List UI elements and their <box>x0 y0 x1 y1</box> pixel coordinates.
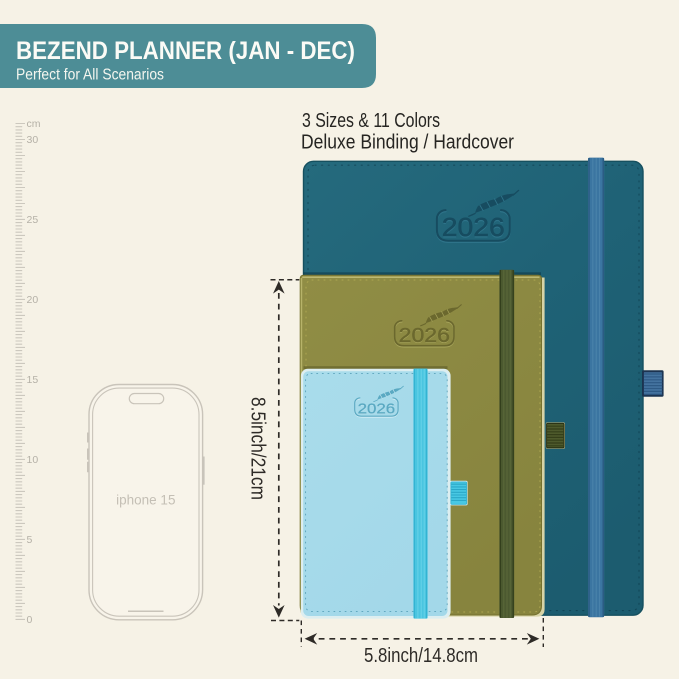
svg-text:2026: 2026 <box>442 214 505 242</box>
svg-text:15: 15 <box>27 374 39 386</box>
svg-text:iphone 15: iphone 15 <box>116 493 175 508</box>
svg-text:3 Sizes & 11 Colors: 3 Sizes & 11 Colors <box>302 109 440 132</box>
svg-text:20: 20 <box>27 294 39 306</box>
svg-text:5: 5 <box>27 534 33 546</box>
svg-text:8.5inch/21cm: 8.5inch/21cm <box>247 397 269 500</box>
svg-text:2026: 2026 <box>358 400 396 417</box>
svg-text:5.8inch/14.8cm: 5.8inch/14.8cm <box>364 644 478 667</box>
svg-text:BEZEND PLANNER (JAN - DEC): BEZEND PLANNER (JAN - DEC) <box>16 37 355 65</box>
svg-text:cm: cm <box>27 118 41 130</box>
svg-text:25: 25 <box>27 214 39 226</box>
svg-text:2026: 2026 <box>399 324 450 347</box>
svg-text:Deluxe Binding / Hardcover: Deluxe Binding / Hardcover <box>301 130 514 153</box>
svg-text:10: 10 <box>27 454 39 466</box>
svg-text:Perfect for All Scenarios: Perfect for All Scenarios <box>16 67 164 84</box>
svg-text:0: 0 <box>27 614 33 626</box>
svg-text:30: 30 <box>27 134 39 146</box>
